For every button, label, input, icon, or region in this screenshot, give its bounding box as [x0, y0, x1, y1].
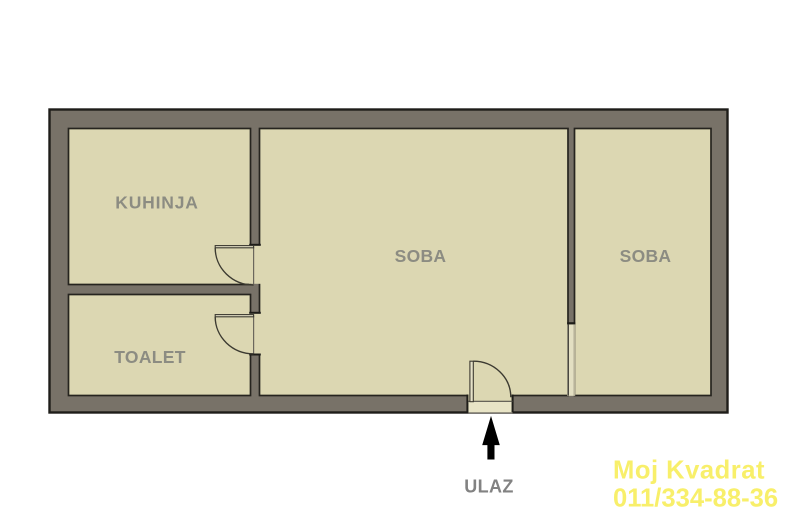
svg-text:SOBA: SOBA [620, 246, 672, 266]
svg-text:KUHINJA: KUHINJA [115, 193, 198, 213]
svg-text:SOBA: SOBA [395, 246, 447, 266]
svg-text:011/334-88-36: 011/334-88-36 [613, 485, 778, 513]
svg-text:ULAZ: ULAZ [464, 477, 514, 497]
svg-text:TOALET: TOALET [114, 347, 185, 367]
svg-text:Moj Kvadrat: Moj Kvadrat [613, 457, 765, 485]
